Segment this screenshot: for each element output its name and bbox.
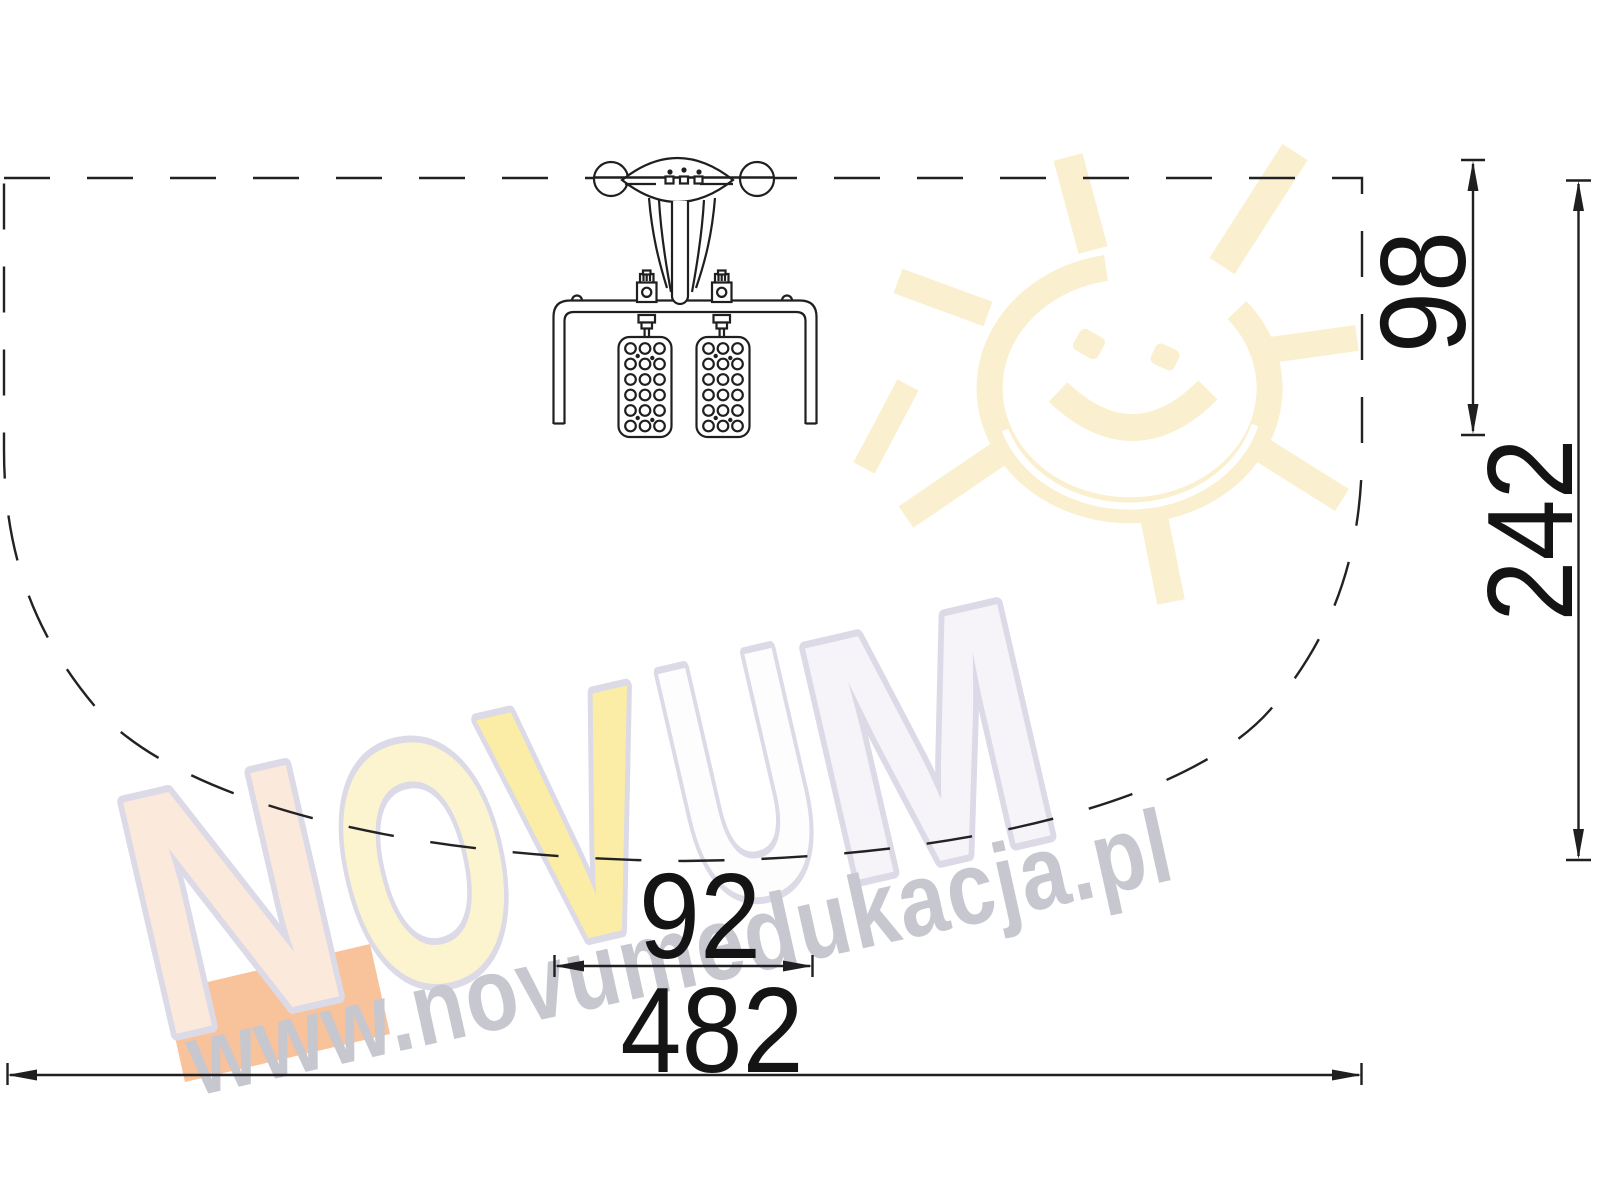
frame-inner-edge xyxy=(565,312,806,424)
pedal-stem-right xyxy=(714,315,731,338)
pedal-right xyxy=(697,337,750,437)
body-top-lens xyxy=(622,158,733,202)
dimension-label-98: 98 xyxy=(1355,231,1492,353)
sun-watermark-icon xyxy=(864,152,1357,602)
diagram-page: N O V U M www.novumedukacja.pl xyxy=(0,0,1600,1200)
pivot-block-left xyxy=(637,271,657,303)
equipment-plan-diagram: N O V U M www.novumedukacja.pl xyxy=(0,0,1600,1200)
sun-smile xyxy=(1058,390,1208,428)
dimension-label-482: 482 xyxy=(620,962,803,1099)
sun-eyes xyxy=(1071,327,1182,373)
pedal-left xyxy=(619,337,672,437)
sun-face-ring xyxy=(990,268,1270,510)
pivot-block-right xyxy=(712,271,732,303)
base-frame xyxy=(554,296,817,425)
dimension-device-depth: 98 xyxy=(1355,160,1492,435)
frame-outer-edge xyxy=(554,301,817,425)
central-post xyxy=(672,201,688,304)
pedal-stem-left xyxy=(639,315,656,338)
dimension-label-242: 242 xyxy=(1462,438,1599,621)
equipment-top-view xyxy=(554,158,817,437)
sun-rays xyxy=(864,152,1357,602)
handle-ball-right xyxy=(740,162,774,196)
